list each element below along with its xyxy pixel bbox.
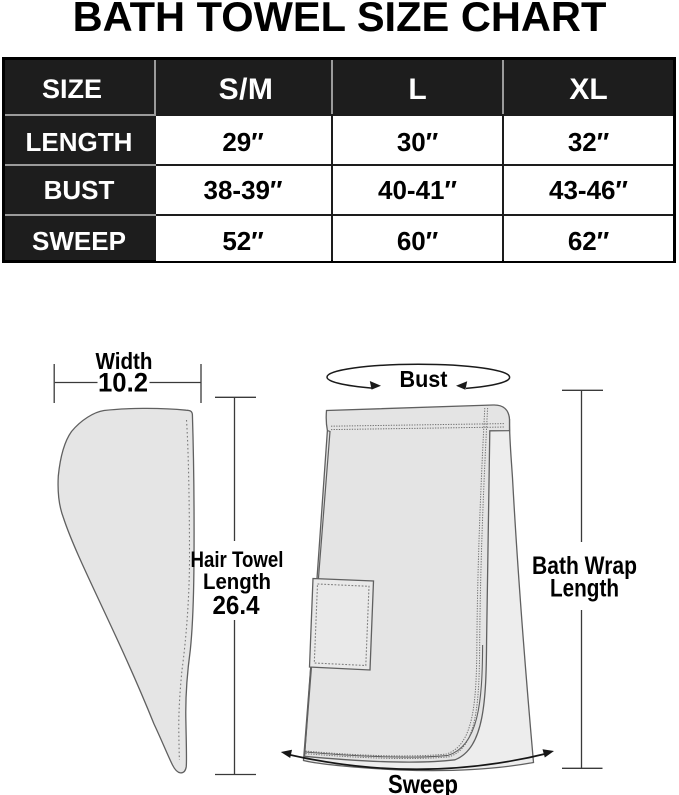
svg-text:10.2: 10.2 <box>98 367 148 397</box>
svg-text:26.4: 26.4 <box>213 590 260 620</box>
svg-text:Sweep: Sweep <box>388 769 458 795</box>
svg-text:Bust: Bust <box>400 366 448 392</box>
svg-text:Length: Length <box>550 575 619 603</box>
